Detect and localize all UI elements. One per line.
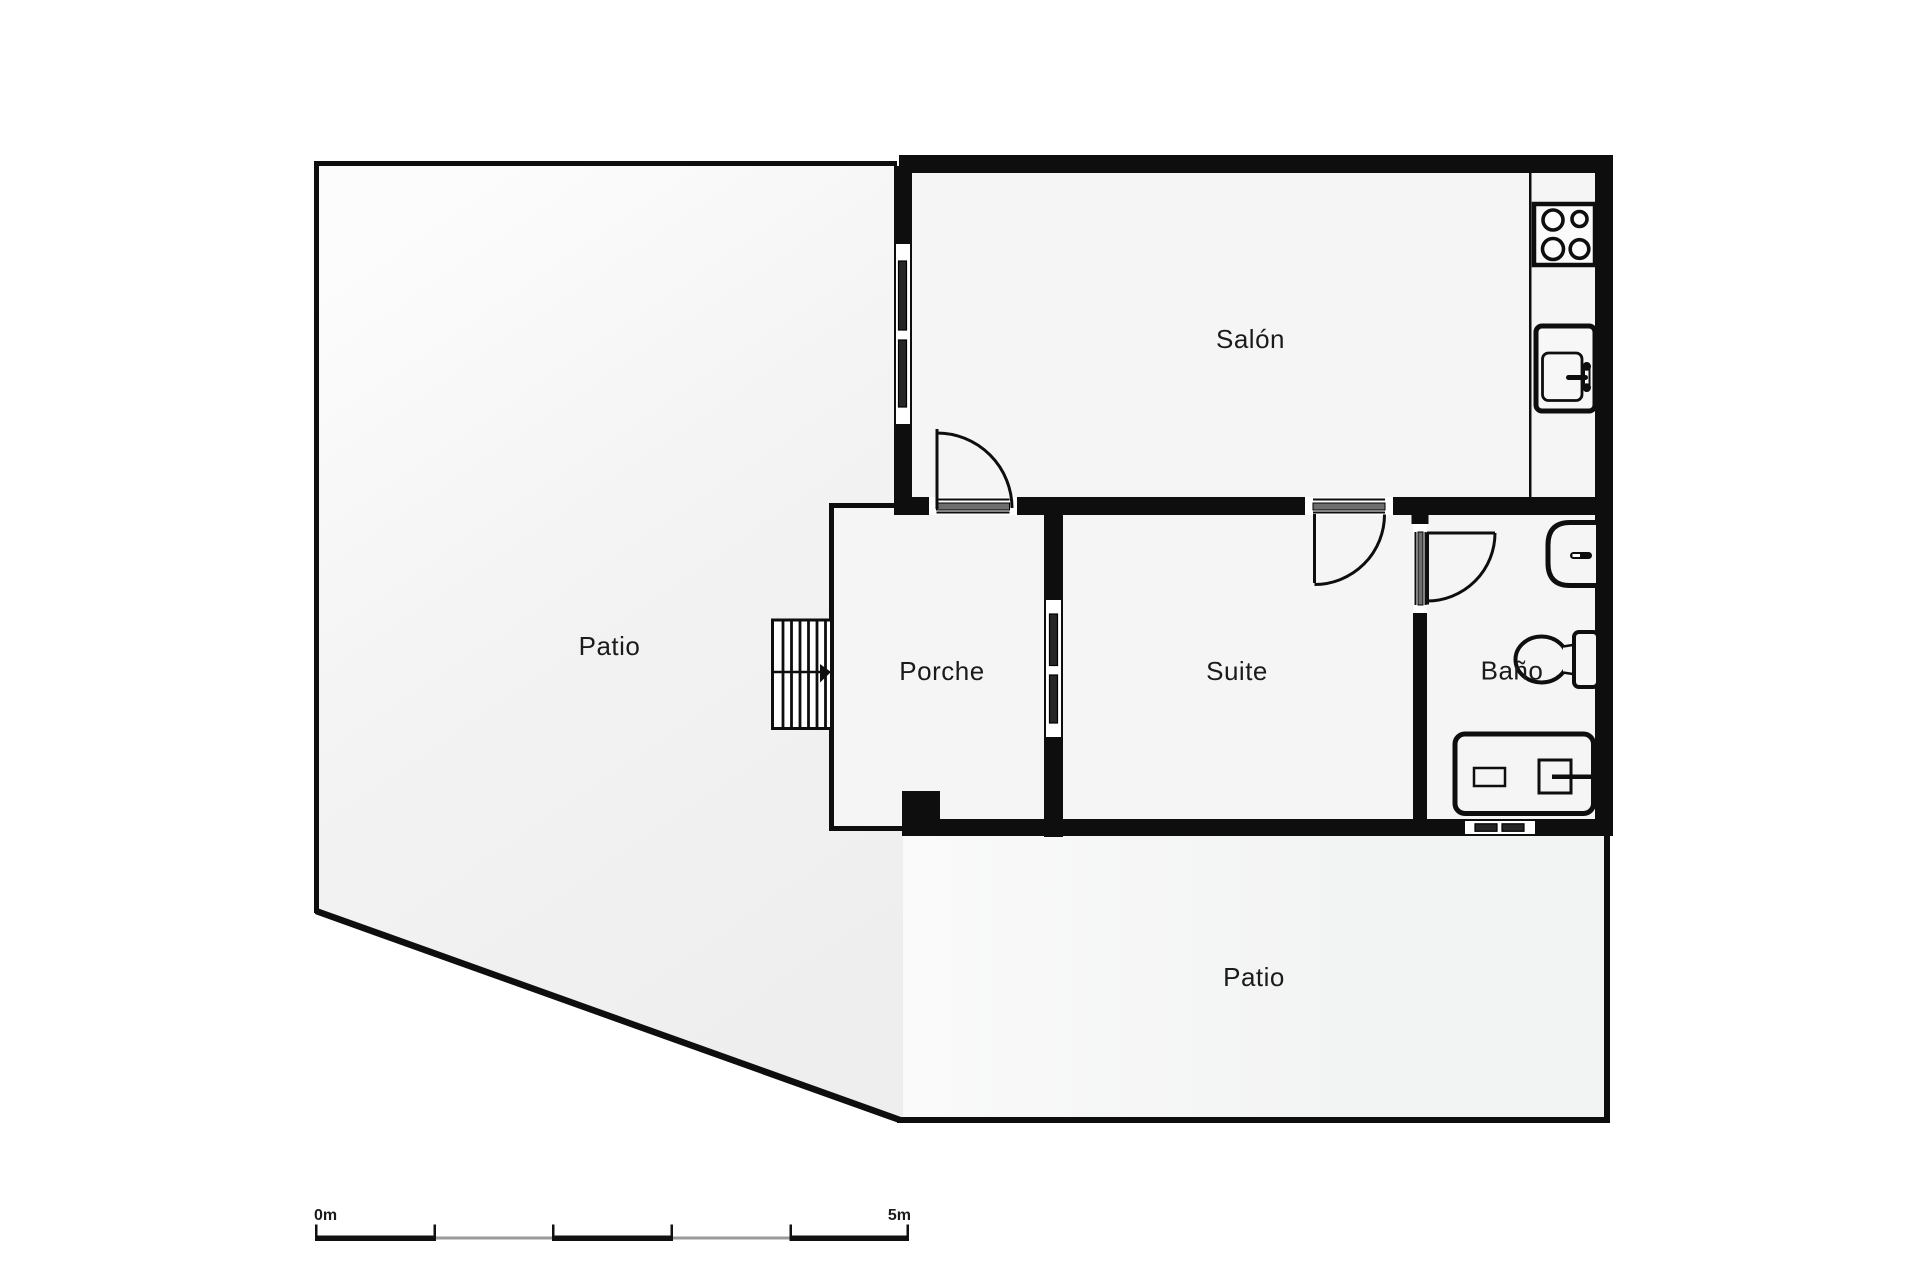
svg-text:5m: 5m — [888, 1207, 911, 1224]
svg-text:Patio: Patio — [1223, 962, 1285, 992]
svg-text:Baño: Baño — [1481, 656, 1544, 686]
svg-text:Salón: Salón — [1216, 324, 1285, 354]
svg-text:0m: 0m — [314, 1207, 337, 1224]
svg-text:Patio: Patio — [579, 631, 641, 661]
svg-text:Porche: Porche — [899, 656, 984, 686]
svg-text:Suite: Suite — [1206, 656, 1268, 686]
